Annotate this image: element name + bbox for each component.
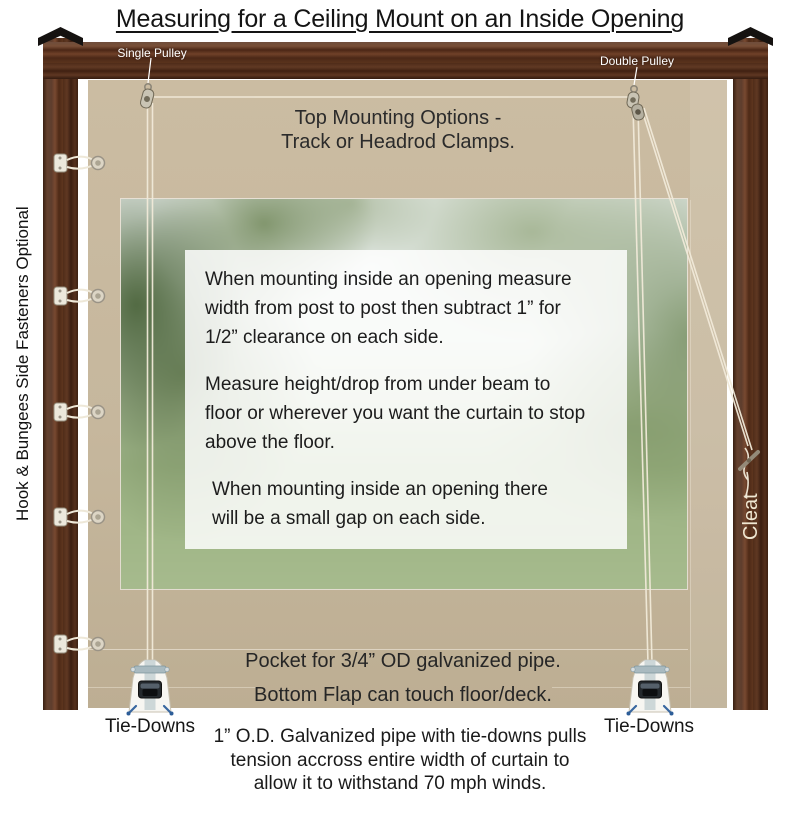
- diagram-canvas: Measuring for a Ceiling Mount on an Insi…: [0, 0, 800, 816]
- instruction-paragraph-1: When mounting inside an opening measure …: [205, 265, 613, 352]
- single-pulley-label: Single Pulley: [92, 46, 212, 60]
- pocket-label: Pocket for 3/4” OD galvanized pipe.: [88, 650, 718, 673]
- curtain-edge-strip: [690, 80, 727, 708]
- footnote-text: 1” O.D. Galvanized pipe with tie-downs p…: [180, 725, 620, 796]
- instruction-paragraph-3: When mounting inside an opening there wi…: [205, 475, 613, 533]
- bottom-flap-label: Bottom Flap can touch floor/deck.: [88, 684, 718, 707]
- left-post: [43, 38, 78, 710]
- curtain-seam-vertical: [690, 200, 691, 708]
- right-post: [733, 38, 768, 710]
- page-title: Measuring for a Ceiling Mount on an Insi…: [0, 5, 800, 34]
- cleat-label: Cleat: [740, 466, 763, 568]
- instruction-box: When mounting inside an opening measure …: [185, 250, 627, 549]
- side-fasteners-label: Hook & Bungees Side Fasteners Optional: [13, 194, 33, 534]
- double-pulley-label: Double Pulley: [577, 54, 697, 68]
- top-mounting-options-label: Top Mounting Options - Track or Headrod …: [88, 106, 708, 154]
- instruction-paragraph-2: Measure height/drop from under beam to f…: [205, 370, 613, 457]
